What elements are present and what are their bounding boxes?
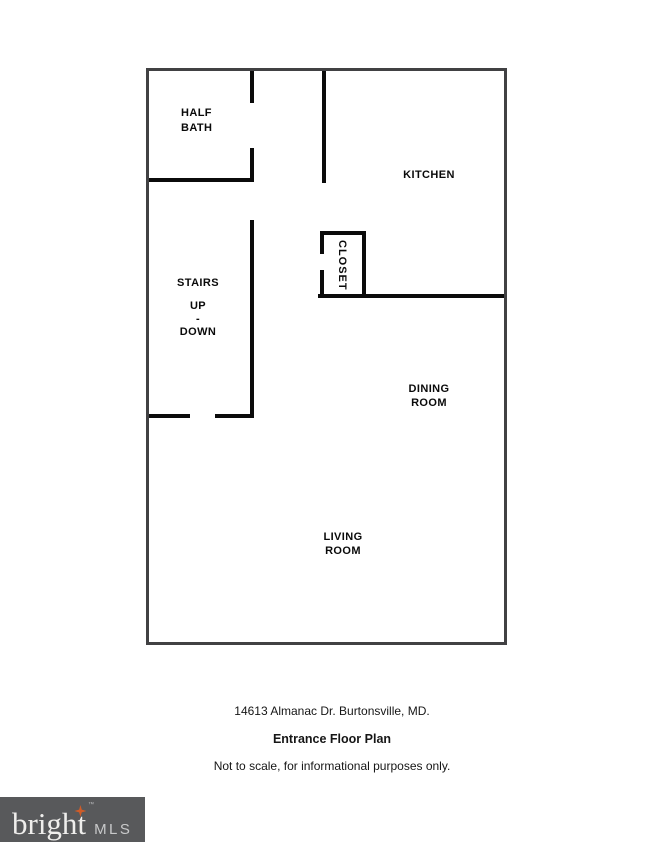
room-label-living-room: LIVING ROOM [293,530,393,558]
stairs-line-1: STAIRS [153,277,243,290]
living-room-line-2: ROOM [293,544,393,558]
wall-stairs-bottom-left [149,414,190,418]
wall-closet-left-upper [320,231,324,254]
room-label-kitchen: KITCHEN [379,168,479,182]
stairs-line-2: UP [153,300,243,313]
wall-half-bath-bottom [149,178,254,182]
wall-closet-right [362,231,366,298]
bright-mls-logo-row: bright™MLS [12,808,132,839]
living-room-line-1: LIVING [293,530,393,544]
logo-suffix-text: MLS [94,821,132,838]
room-label-dining-room: DINING ROOM [379,382,479,410]
bright-mls-logo: bright™MLS [0,797,145,842]
room-label-half-bath: HALF BATH [181,106,241,136]
wall-kitchen-left [322,71,326,183]
wall-stairs-bottom-right [215,414,254,418]
dining-room-line-1: DINING [379,382,479,396]
dining-room-line-2: ROOM [379,396,479,410]
logo-brand-t: t™ [77,808,86,839]
room-label-stairs: STAIRS UP - DOWN [153,277,243,339]
logo-brand-text: bright™ [12,806,86,841]
wall-closet-left-lower [320,270,324,297]
logo-brand-prefix: brigh [12,806,77,841]
stairs-line-3: - [153,313,243,326]
wall-half-bath-right-upper [250,71,254,103]
half-bath-line-1: HALF [181,106,241,121]
floor-plan-page: HALF BATH KITCHEN STAIRS UP - DOWN CLOSE… [0,0,650,842]
disclaimer-caption: Not to scale, for informational purposes… [14,759,650,773]
room-label-closet: CLOSET [335,233,349,297]
half-bath-line-2: BATH [181,121,241,136]
stairs-line-4: DOWN [153,326,243,339]
kitchen-label: KITCHEN [379,168,479,182]
trademark-symbol: ™ [88,802,94,808]
wall-stairs-right [250,220,254,418]
wall-half-bath-right-lower [250,148,254,181]
plan-title: Entrance Floor Plan [14,732,650,746]
closet-label: CLOSET [335,233,349,297]
address-caption: 14613 Almanac Dr. Burtonsville, MD. [14,704,650,718]
floor-plan-outline: HALF BATH KITCHEN STAIRS UP - DOWN CLOSE… [146,68,507,645]
